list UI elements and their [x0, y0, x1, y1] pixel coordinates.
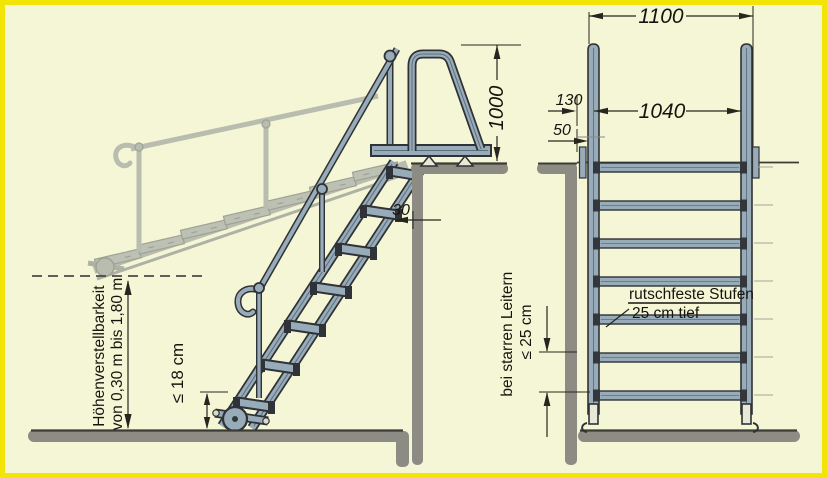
- lower-ground: [28, 430, 405, 442]
- platform-foot-2: [457, 156, 473, 166]
- dimension-height-adjust: Höhenverstellbarkeit von 0,30 m bis 1,80…: [91, 278, 132, 431]
- front-wall: [565, 163, 577, 465]
- guard-hoop: [412, 54, 481, 151]
- ladder-hook-left: [580, 147, 587, 178]
- rigid-ladder-line1: bei starren Leitern: [499, 272, 516, 397]
- shadow-post-ball-1: [135, 143, 143, 151]
- rigid-ladder-line2: ≤ 25 cm: [518, 304, 535, 359]
- lower-ground-corner: [396, 431, 409, 467]
- handrail-ball-bottom: [254, 283, 264, 293]
- drawing-frame: 1000 30 ≤ 18 cm Höhenverstellbarkeit von…: [0, 0, 827, 478]
- dimension-1100: 1100: [589, 5, 753, 28]
- ladder-hook-right: [753, 147, 760, 178]
- dimension-130: 130: [548, 92, 582, 126]
- shadow-roller: [96, 258, 114, 276]
- dim-130-label: 130: [556, 92, 583, 109]
- shadow-handrail-curl: [116, 145, 135, 165]
- dimension-1000: 1000: [461, 45, 521, 161]
- platform-foot-1: [421, 156, 437, 166]
- shadow-post-ball-2: [262, 120, 270, 128]
- height-adjust-line1: Höhenverstellbarkeit: [91, 285, 108, 427]
- steps-label-line2: 25 cm tief: [632, 305, 700, 322]
- steps-label-line1: rutschfeste Stufen: [629, 286, 754, 303]
- side-view: 1000 30 ≤ 18 cm Höhenverstellbarkeit von…: [28, 45, 521, 467]
- upper-wall: [412, 163, 423, 465]
- dim-50-label: 50: [553, 122, 571, 139]
- front-view: 1100 1040 130 50: [499, 5, 800, 465]
- height-adjust-line2: von 0,30 m bis 1,80 m: [109, 278, 126, 431]
- technical-drawing: 1000 30 ≤ 18 cm Höhenverstellbarkeit von…: [5, 5, 822, 473]
- dim-1040-label: 1040: [639, 100, 686, 123]
- ladder-feet: [582, 404, 758, 432]
- height-adjust-label: Höhenverstellbarkeit von 0,30 m bis 1,80…: [91, 278, 126, 431]
- dim-1100-label: 1100: [638, 5, 683, 28]
- dim-1000-label: 1000: [486, 86, 508, 131]
- step-height-label: ≤ 18 cm: [168, 343, 187, 403]
- dim-30-label: 30: [392, 202, 410, 219]
- front-floor: [578, 430, 800, 442]
- dimension-1040: 1040: [594, 100, 741, 123]
- handrail-ball-mid: [317, 184, 327, 194]
- stair: [213, 49, 422, 431]
- handrail-ball-top: [385, 51, 396, 62]
- rigid-ladder-label: bei starren Leitern ≤ 25 cm: [499, 267, 535, 396]
